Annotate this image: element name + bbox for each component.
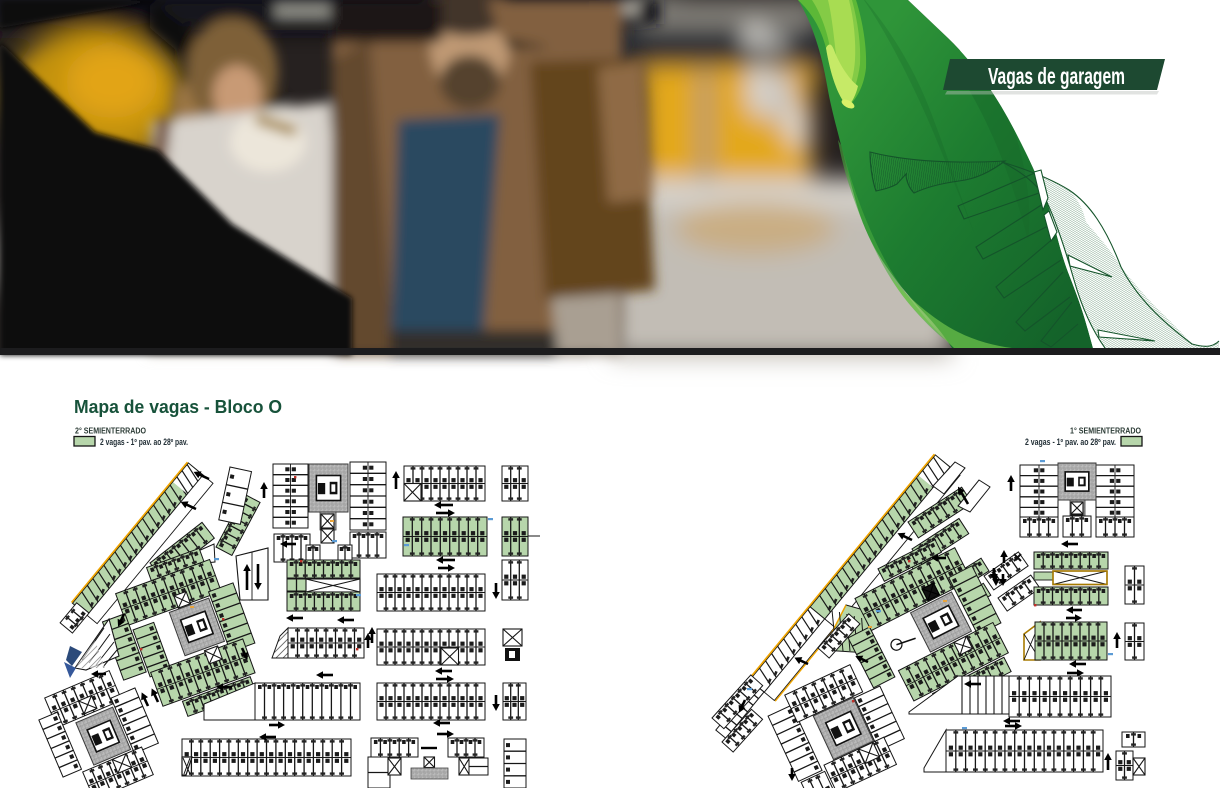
svg-text:2 vagas - 1º pav. ao 28º pav.: 2 vagas - 1º pav. ao 28º pav.: [1025, 437, 1116, 447]
svg-text:1° SEMIENTERRADO: 1° SEMIENTERRADO: [1070, 427, 1141, 436]
svg-text:2° SEMIENTERRADO: 2° SEMIENTERRADO: [75, 427, 146, 436]
svg-text:2 vagas - 1º pav. ao 28º pav.: 2 vagas - 1º pav. ao 28º pav.: [100, 437, 188, 447]
svg-text:Vagas de garagem: Vagas de garagem: [988, 63, 1125, 89]
svg-text:Mapa de vagas - Bloco O: Mapa de vagas - Bloco O: [74, 397, 282, 417]
